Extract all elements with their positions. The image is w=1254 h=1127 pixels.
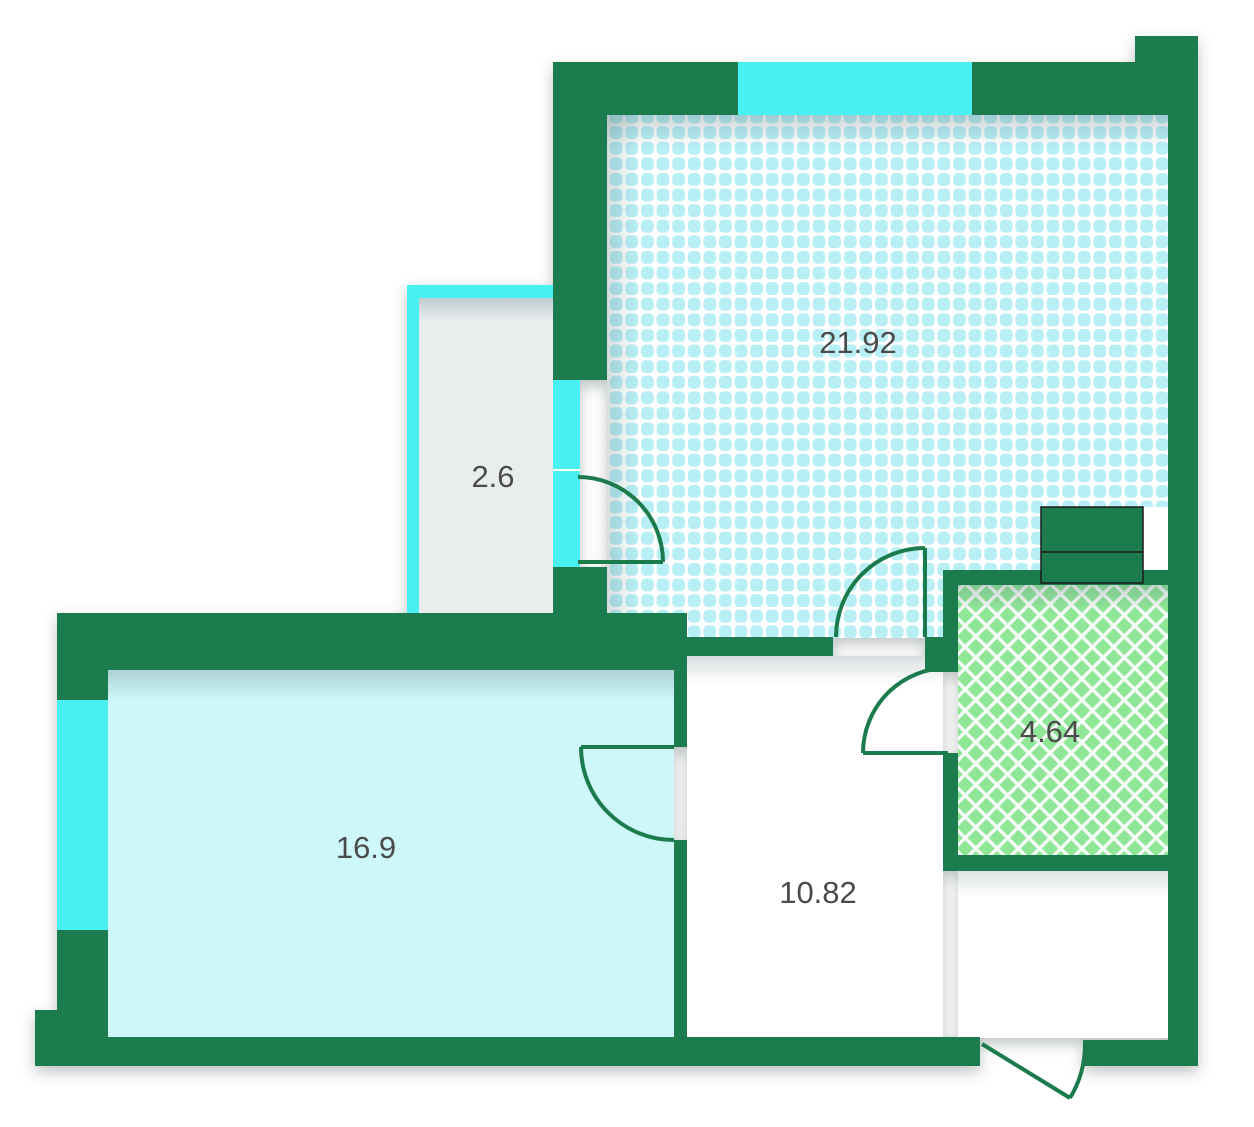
- balcony-floor: [419, 297, 553, 613]
- plan-body: [35, 36, 1198, 1066]
- window-balcony-door: [553, 380, 580, 567]
- hallway-floor: [687, 656, 943, 1038]
- hallway-area-label: 10.82: [779, 875, 857, 910]
- floor-plan: 21.92 2.6 16.9 10.82 4.64: [0, 0, 1254, 1127]
- duct-box: [1041, 507, 1143, 583]
- door-entrance: [982, 1044, 1085, 1098]
- wall-right: [1168, 36, 1198, 1066]
- wall-bottom-right: [1083, 1040, 1198, 1066]
- wall-bottom-left: [35, 1037, 980, 1066]
- duct-recess: [1143, 507, 1168, 570]
- wall-bedroom-top: [57, 613, 687, 670]
- wall-living-left-stub: [553, 567, 607, 613]
- wall-living-bottom-left: [595, 637, 833, 656]
- wall-hall-bath-upper: [943, 570, 958, 672]
- shade-hallway-right-top: [958, 871, 1168, 897]
- balcony-area-label: 2.6: [471, 459, 514, 494]
- bathroom-area-label: 4.64: [1020, 714, 1080, 749]
- floor-plan-svg: 21.92 2.6 16.9 10.82 4.64: [0, 0, 1254, 1127]
- wall-bathroom-bottom: [943, 855, 1168, 871]
- window-bedroom-left: [57, 700, 108, 930]
- wall-bedroom-hall-lower: [674, 840, 687, 1040]
- living-room-area-label: 21.92: [819, 325, 897, 360]
- shade-living-left: [607, 115, 639, 638]
- shade-balcony-top: [419, 297, 553, 321]
- door-entrance-swing-arc: [1070, 1044, 1085, 1098]
- window-living-top: [738, 62, 972, 115]
- window-balcony-left-glazing: [407, 285, 419, 613]
- shade-bathroom-top: [958, 585, 1168, 611]
- wall-living-left-upper: [553, 62, 607, 380]
- shade-bedroom-top: [108, 670, 674, 700]
- bedroom-area-label: 16.9: [336, 830, 396, 865]
- shade-living-top: [607, 115, 1168, 149]
- wall-left-upper: [57, 613, 108, 700]
- wall-hall-bath-lower: [943, 753, 958, 871]
- door-entrance-leaf: [982, 1044, 1070, 1098]
- window-balcony-top-glazing: [407, 285, 553, 298]
